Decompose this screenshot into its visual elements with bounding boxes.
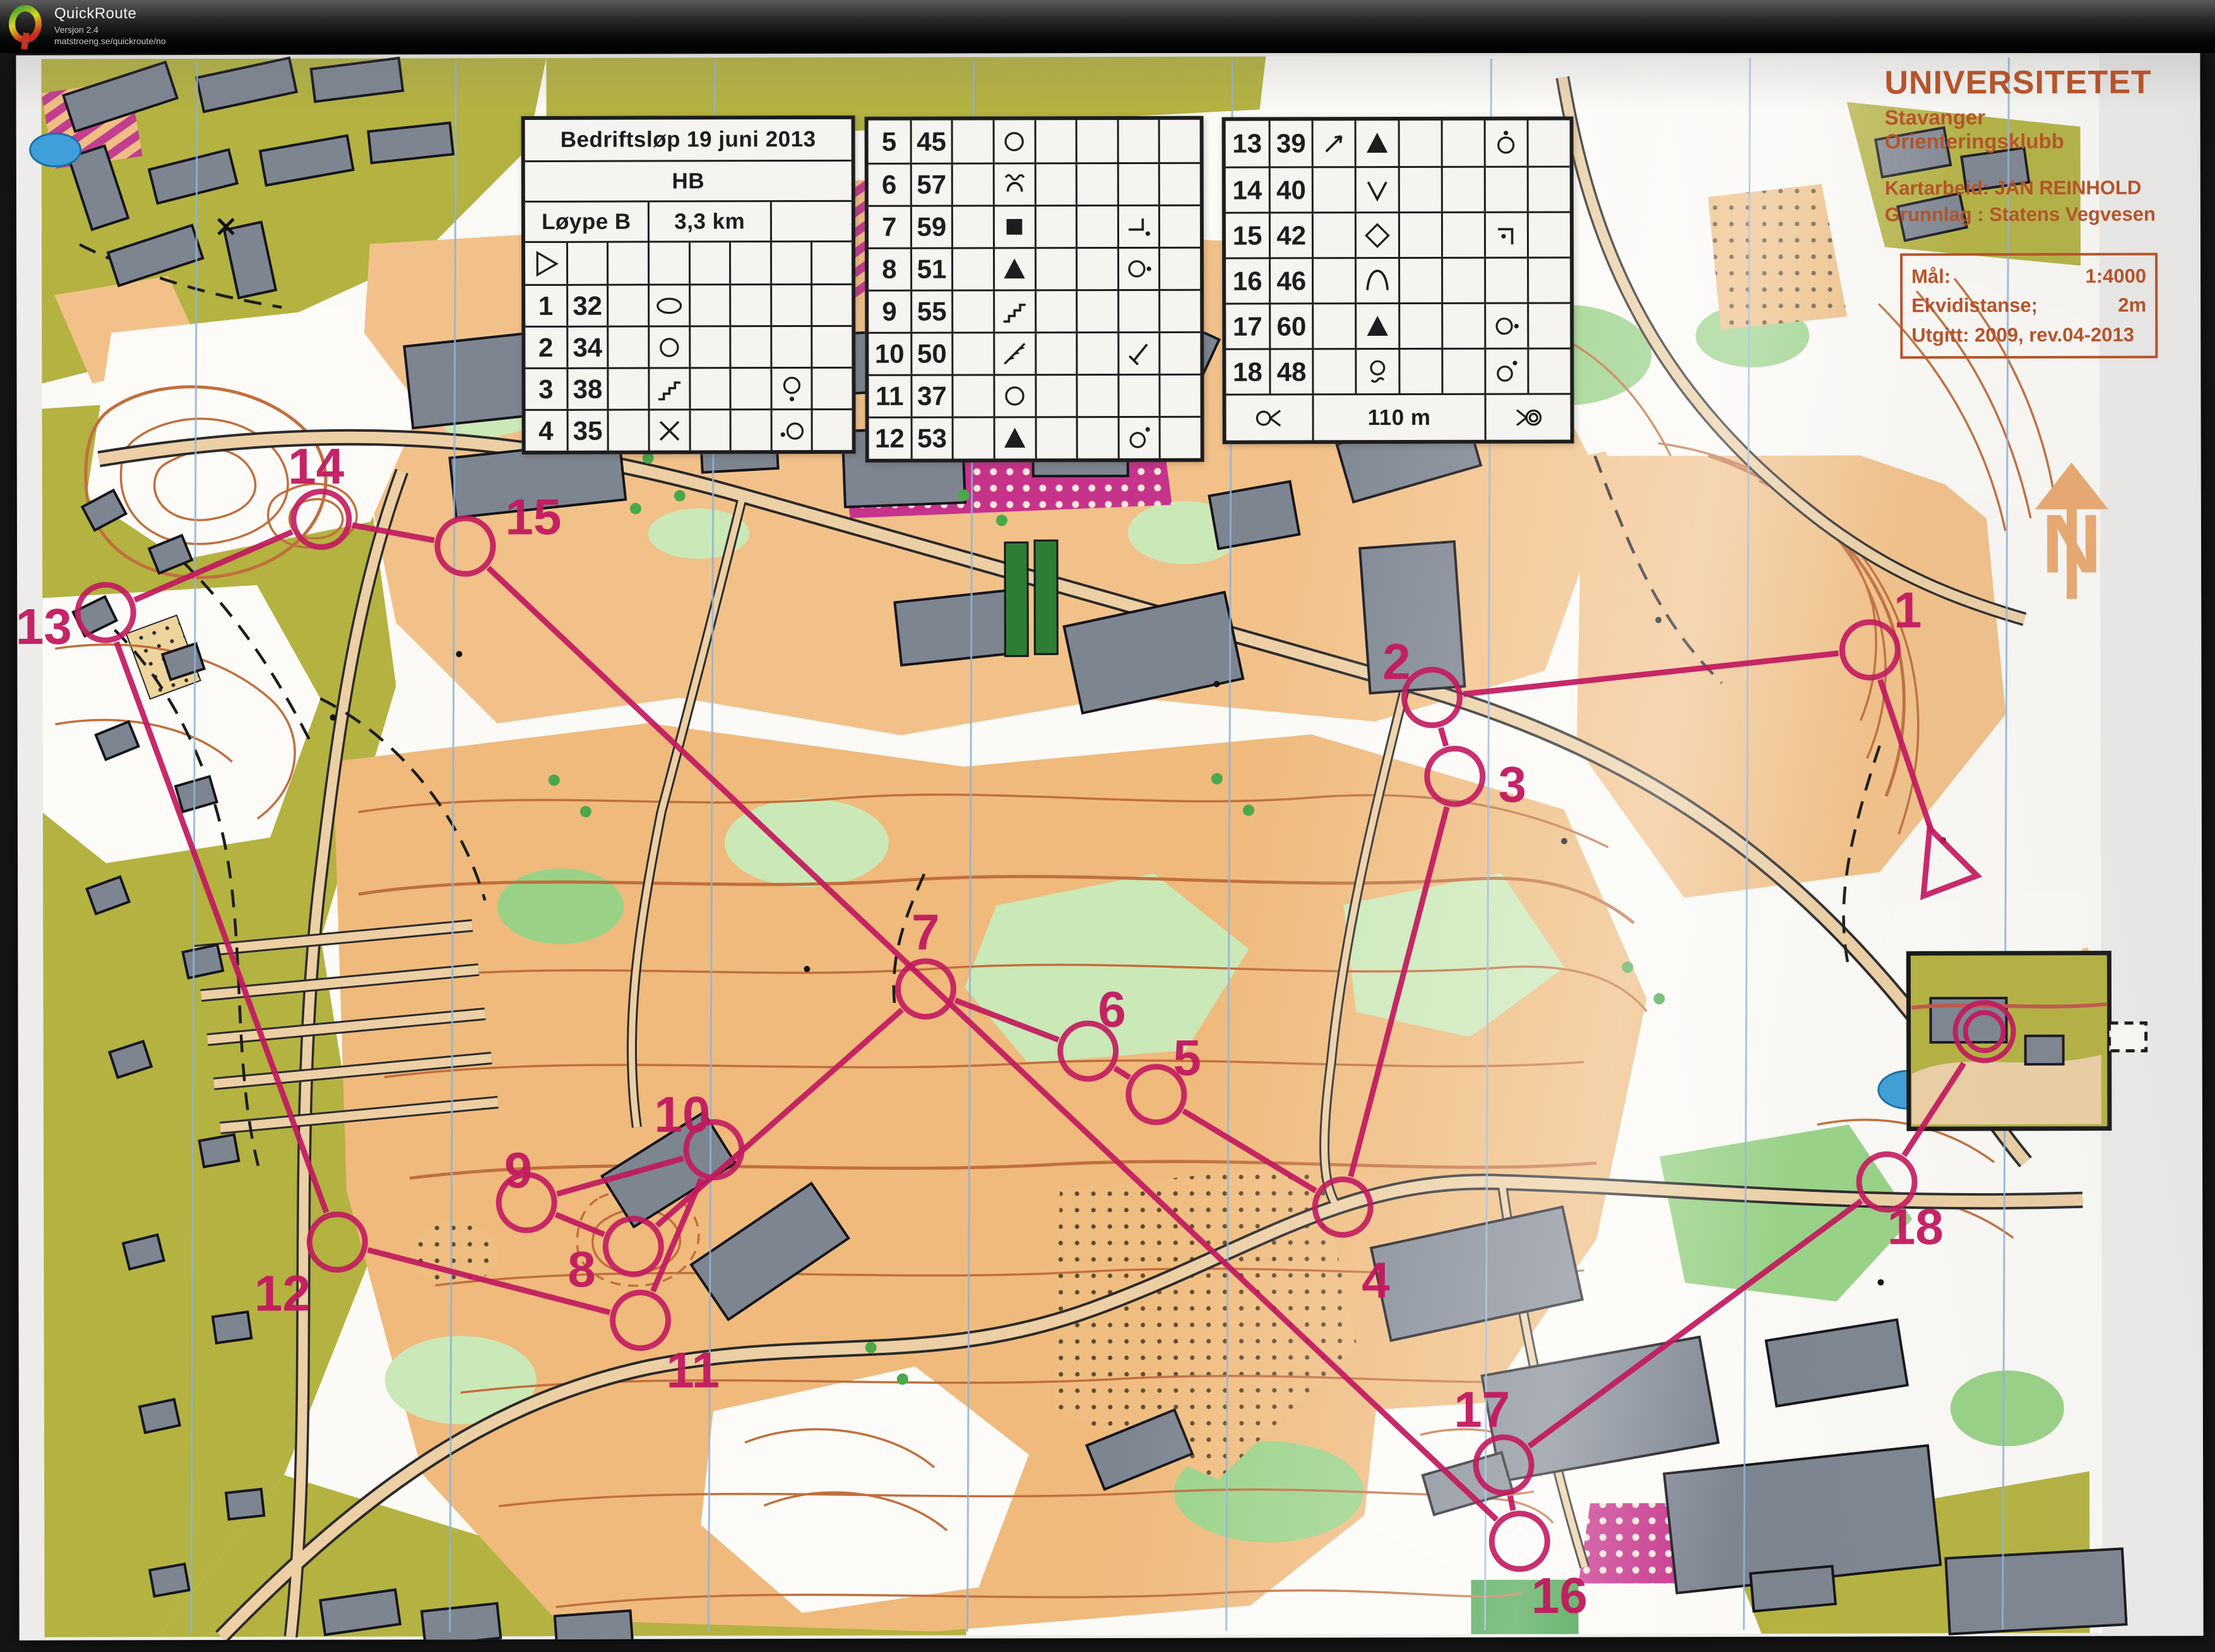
control-number-label-4: 4 [1362, 1252, 1390, 1309]
course-leg-line [1528, 1201, 1862, 1446]
app-homepage-url: matstroeng.se/quickroute/no [54, 36, 166, 46]
control-number-label-10: 10 [654, 1086, 710, 1143]
control-number-label-16: 16 [1531, 1567, 1588, 1624]
course-leg-line [557, 1158, 684, 1194]
course-leg-line [1510, 1496, 1513, 1511]
control-number-label-1: 1 [1894, 582, 1922, 638]
course-leg-line [116, 642, 326, 1213]
app-title: QuickRoute [54, 5, 166, 23]
control-number-label-18: 18 [1887, 1199, 1944, 1255]
app-version: Versjon 2.4 [54, 25, 166, 35]
course-overlay: 123456789101112131415161718 [16, 51, 2203, 1640]
start-triangle [1923, 828, 1977, 896]
course-leg-line [1350, 807, 1448, 1177]
control-circle-8 [605, 1218, 661, 1274]
course-leg-line [1184, 1110, 1316, 1191]
control-circle-15 [437, 518, 493, 574]
control-number-label-2: 2 [1382, 634, 1411, 690]
control-number-label-9: 9 [504, 1142, 533, 1198]
quickroute-window: QuickRoute Versjon 2.4 matstroeng.se/qui… [0, 0, 2215, 1652]
control-circle-4 [1315, 1179, 1370, 1235]
control-number-label-6: 6 [1098, 981, 1126, 1037]
app-header-bar: QuickRoute Versjon 2.4 matstroeng.se/qui… [0, 0, 2215, 53]
control-number-label-15: 15 [505, 489, 561, 545]
control-number-label-5: 5 [1173, 1030, 1201, 1086]
control-circle-13 [78, 585, 133, 640]
finish-circle-inner [1966, 1013, 2004, 1050]
control-number-label-13: 13 [16, 598, 71, 655]
course-leg-line [1880, 680, 1932, 833]
control-number-label-11: 11 [666, 1342, 720, 1398]
control-circle-16 [1492, 1514, 1547, 1569]
course-leg-line [488, 566, 1497, 1522]
control-number-label-14: 14 [288, 438, 345, 494]
control-circle-12 [309, 1214, 365, 1269]
quickroute-logo-icon [8, 5, 45, 51]
control-circle-14 [294, 492, 349, 547]
course-leg-line [1115, 1068, 1130, 1078]
control-number-label-3: 3 [1498, 756, 1526, 812]
course-leg-line [352, 525, 434, 541]
control-circle-2 [1404, 670, 1459, 725]
course-leg-line [555, 1215, 604, 1235]
control-circle-3 [1427, 749, 1483, 804]
course-leg-line [1904, 1063, 1964, 1155]
control-circle-17 [1476, 1437, 1531, 1493]
scanned-map-paper: 123456789101112131415161718 Bedriftsløp … [16, 51, 2203, 1640]
control-circle-1 [1842, 622, 1897, 677]
course-leg-line [1463, 653, 1839, 694]
control-number-label-12: 12 [254, 1265, 311, 1321]
course-leg-line [134, 532, 292, 600]
course-leg-line [1440, 728, 1446, 746]
control-number-label-8: 8 [567, 1241, 596, 1297]
control-number-label-7: 7 [912, 904, 940, 960]
control-circle-11 [612, 1292, 668, 1348]
control-circle-7 [898, 961, 953, 1017]
control-number-label-17: 17 [1454, 1381, 1510, 1437]
